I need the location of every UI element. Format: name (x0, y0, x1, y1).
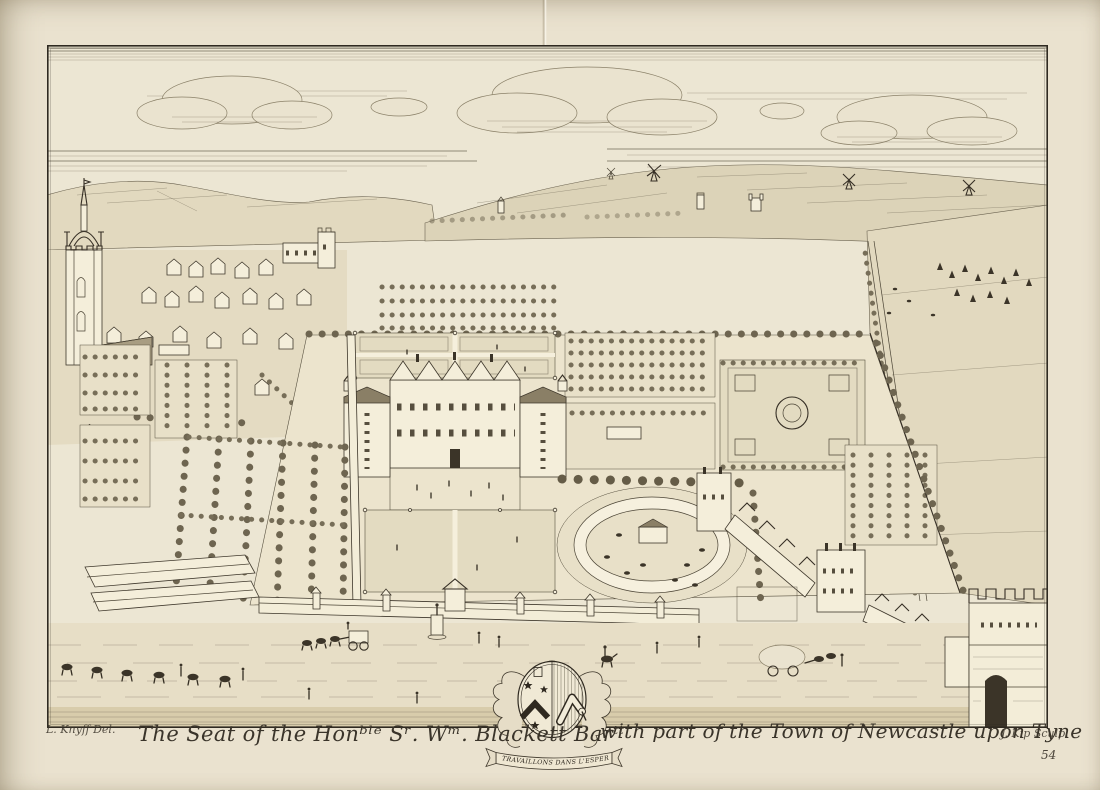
forecourt (390, 465, 520, 510)
plate-number: 54 (1041, 748, 1056, 762)
draughtsman-credit: L. Knyff Del. (46, 723, 115, 736)
plate-title-right: with part of the Town of Newcastle upon … (600, 719, 936, 743)
town-church-tower-2 (318, 228, 335, 268)
bowling-green: bowling green garden (363, 508, 557, 594)
engraving-sheet: engraved cloud bank (0, 0, 1100, 790)
kitchen-garden (845, 445, 937, 545)
mansion-door (450, 449, 460, 468)
garden-pavilion (607, 427, 641, 439)
plate-title-left: The Seat of the Honᵇˡᵉ Sʳ. Wᵐ. Blackett … (138, 722, 512, 746)
ornamental-parterre (720, 360, 865, 470)
coat-of-arms: Blackett coat of arms cartouche (482, 658, 627, 776)
engraver-credit: J. Kip Sculp. (1001, 727, 1069, 740)
paper-fold-crease (542, 0, 547, 46)
greenhouse (159, 345, 189, 355)
engraved-plate: engraved cloud bank (47, 45, 1048, 728)
